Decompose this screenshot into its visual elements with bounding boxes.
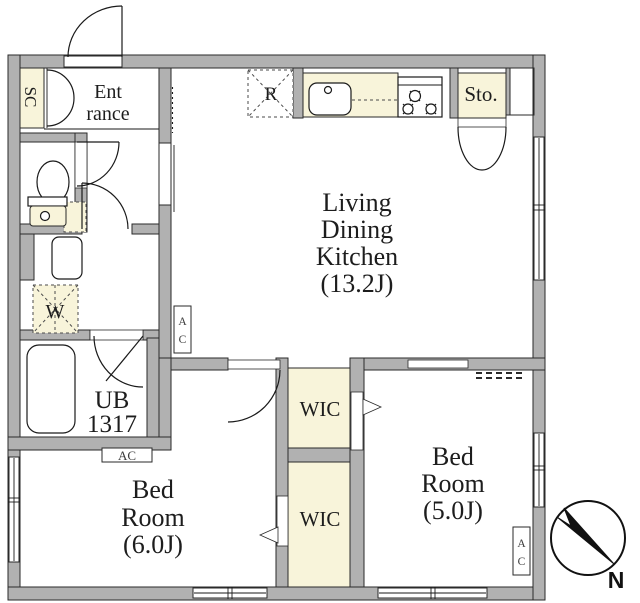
sanitary-fixtures — [27, 161, 82, 433]
sink-icon — [309, 83, 351, 115]
ac-living-letter-c: C — [179, 334, 187, 346]
shoe-closet-doors — [47, 68, 74, 128]
svg-text:Bed: Bed — [432, 442, 474, 471]
wic-lower-door-arrow — [260, 527, 278, 543]
label-storage: Sto. — [464, 82, 497, 106]
label-bedroom5: Bed Room (5.0J) — [421, 442, 485, 525]
storage-doors — [458, 127, 506, 170]
wall-hall-right-bottom — [159, 358, 171, 437]
ac-living-letter-a: A — [178, 316, 187, 328]
washroom-door — [82, 183, 128, 229]
burner-2 — [403, 104, 413, 114]
label-wic-lower: WIC — [300, 507, 341, 531]
burner-3 — [426, 104, 436, 114]
storage-door-track — [458, 118, 506, 127]
window-living-right — [533, 137, 545, 280]
toilet-icon — [28, 161, 69, 226]
compass: N — [551, 501, 625, 593]
corner-pillar — [510, 68, 533, 115]
hall-sliding-door — [159, 143, 171, 205]
bathtub-icon — [27, 345, 75, 433]
svg-text:(13.2J): (13.2J) — [321, 269, 394, 298]
wall-wic-middle — [288, 448, 350, 462]
toilet-door-opening — [75, 142, 87, 188]
wall-hall-right-lower — [159, 205, 171, 358]
floor-plan: A C AC A C SC Ent rance R Sto. Living Di… — [0, 0, 640, 603]
svg-text:(6.0J): (6.0J) — [123, 530, 183, 559]
svg-text:1317: 1317 — [87, 411, 137, 438]
wall-kitchen-stub-mid — [450, 68, 458, 118]
wall-basin-stub — [20, 234, 34, 280]
ac-bedroom5-letter-a: A — [517, 538, 526, 550]
wall-washroom-top-right — [132, 224, 159, 234]
bedroom6-door — [228, 370, 280, 422]
svg-text:Ent: Ent — [94, 81, 122, 103]
bedroom6-door-panel — [228, 360, 280, 369]
label-north: N — [608, 567, 625, 593]
floor-plan-svg: A C AC A C SC Ent rance R Sto. Living Di… — [0, 0, 640, 603]
entrance-door — [68, 6, 122, 57]
entrance-door-threshold — [64, 56, 122, 67]
wall-hall-right-upper — [159, 68, 171, 143]
svg-text:Kitchen: Kitchen — [316, 242, 398, 271]
svg-text:rance: rance — [86, 103, 129, 125]
wall-bedroom6-top — [171, 358, 228, 370]
label-ldk: Living Dining Kitchen (13.2J) — [316, 188, 398, 298]
wall-wic-left — [276, 358, 288, 587]
svg-text:(5.0J): (5.0J) — [423, 496, 483, 525]
wall-kitchen-stub-left — [293, 68, 303, 118]
ac-unit-living: A C — [174, 306, 191, 353]
washbasin-icon — [52, 237, 82, 279]
label-unit-bath: UB 1317 — [87, 387, 137, 438]
label-wic-upper: WIC — [300, 397, 341, 421]
ac-bedroom6-label: AC — [118, 448, 136, 463]
window-bedroom6-bottom — [193, 587, 267, 599]
burner-1 — [410, 91, 421, 102]
stove-icon — [398, 77, 442, 117]
svg-text:Dining: Dining — [321, 215, 393, 244]
label-shoe-closet: SC — [21, 87, 40, 108]
bath-door — [94, 336, 143, 387]
label-bedroom6: Bed Room (6.0J) — [121, 475, 185, 559]
window-bedroom5-bottom — [378, 587, 487, 599]
label-washer: W — [46, 301, 65, 323]
wic-upper-door — [351, 392, 381, 450]
ac-unit-bedroom6: AC — [102, 448, 152, 463]
wall-toilet-top — [20, 133, 75, 142]
svg-text:Room: Room — [121, 503, 185, 532]
label-refrigerator: R — [265, 84, 278, 105]
svg-text:Bed: Bed — [132, 475, 174, 504]
ac-bedroom5-letter-c: C — [518, 556, 526, 568]
svg-text:Room: Room — [421, 469, 485, 498]
label-entrance: Ent rance — [86, 81, 129, 125]
window-bedroom5-right — [533, 433, 545, 507]
room-labels: SC Ent rance R Sto. Living Dining Kitche… — [21, 81, 498, 559]
svg-text:Living: Living — [322, 188, 391, 217]
wic-upper-door-arrow — [363, 399, 381, 415]
ac-unit-bedroom5: A C — [513, 527, 530, 575]
svg-text:UB: UB — [95, 387, 130, 414]
wic-lower-door — [260, 496, 288, 546]
window-bedroom6-left — [8, 457, 20, 562]
bath-door-opening — [90, 330, 143, 340]
bedroom5-wall-inset — [408, 360, 468, 368]
